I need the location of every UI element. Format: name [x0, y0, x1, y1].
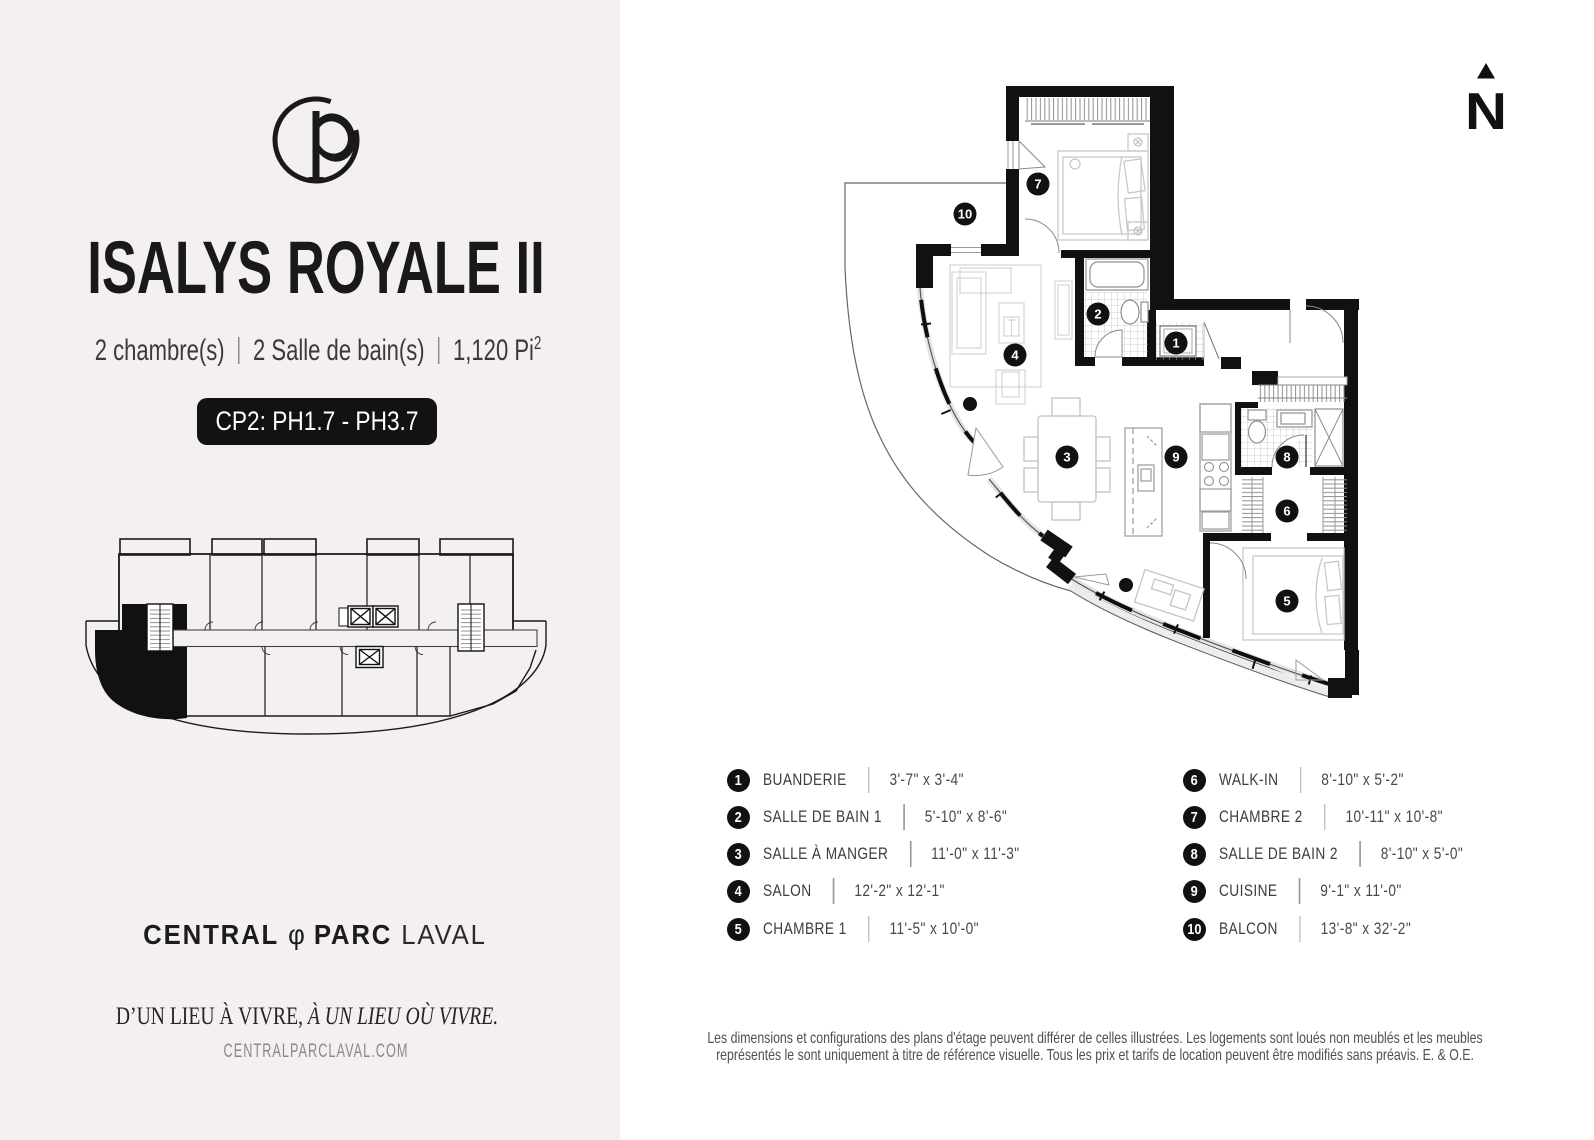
svg-text:9: 9 [1172, 450, 1179, 465]
svg-text:1: 1 [1172, 336, 1179, 351]
svg-text:10: 10 [958, 207, 972, 222]
svg-text:6: 6 [1283, 504, 1290, 519]
svg-text:5: 5 [1283, 594, 1290, 609]
svg-text:2: 2 [1094, 307, 1101, 322]
svg-text:4: 4 [1011, 348, 1019, 363]
svg-text:N: N [1465, 83, 1507, 141]
svg-text:7: 7 [1034, 177, 1041, 192]
svg-text:8: 8 [1283, 450, 1290, 465]
svg-text:3: 3 [1063, 450, 1070, 465]
